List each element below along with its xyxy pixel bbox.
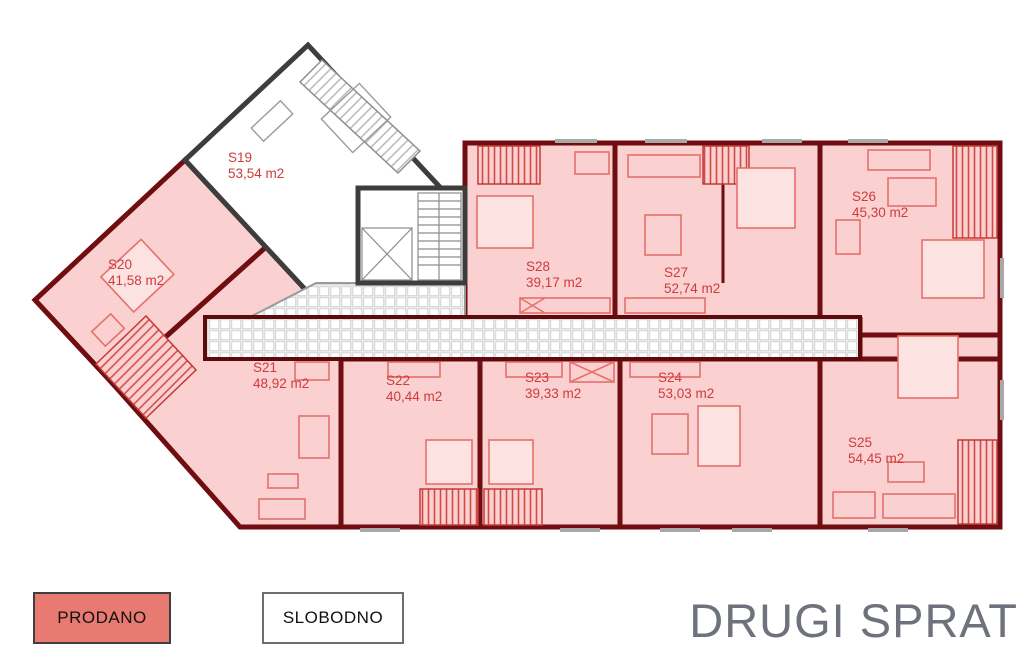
apartment-s20-area: 41,58 m2 xyxy=(108,273,164,288)
legend-sold-label: PRODANO xyxy=(57,608,146,628)
apartment-s23-area: 39,33 m2 xyxy=(525,386,581,401)
apartment-s26-area: 45,30 m2 xyxy=(852,205,908,220)
floor-plan-drawing: S19 53,54 m2 S20 41,58 m2 S21 48,92 m2 S… xyxy=(0,0,1024,671)
floor-title: DRUGI SPRAT xyxy=(689,593,1018,648)
stair-core xyxy=(358,188,465,283)
apartment-s28-id: S28 xyxy=(526,259,550,274)
apartment-s27-area: 52,74 m2 xyxy=(664,281,720,296)
apartment-s22-area: 40,44 m2 xyxy=(386,389,442,404)
corridor xyxy=(205,317,860,359)
apartment-s20-id: S20 xyxy=(108,257,132,272)
apartment-s26-id: S26 xyxy=(852,189,876,204)
apartment-s27-id: S27 xyxy=(664,265,688,280)
apartment-s25-id: S25 xyxy=(848,435,872,450)
apartment-s25-area: 54,45 m2 xyxy=(848,451,904,466)
apartment-s24-area: 53,03 m2 xyxy=(658,386,714,401)
floor-plan-page: S19 53,54 m2 S20 41,58 m2 S21 48,92 m2 S… xyxy=(0,0,1024,671)
apartment-s23-id: S23 xyxy=(525,370,549,385)
apartment-s21-area: 48,92 m2 xyxy=(253,376,309,391)
legend-free-label: SLOBODNO xyxy=(283,608,383,628)
apartment-s24-id: S24 xyxy=(658,370,683,385)
apartment-s28-area: 39,17 m2 xyxy=(526,275,582,290)
legend-sold: PRODANO xyxy=(33,592,171,644)
legend-free: SLOBODNO xyxy=(262,592,404,644)
apartment-s21-id: S21 xyxy=(253,360,277,375)
apartment-s19-id: S19 xyxy=(228,150,252,165)
apartment-s19-area: 53,54 m2 xyxy=(228,166,284,181)
apartment-s22-id: S22 xyxy=(386,373,410,388)
